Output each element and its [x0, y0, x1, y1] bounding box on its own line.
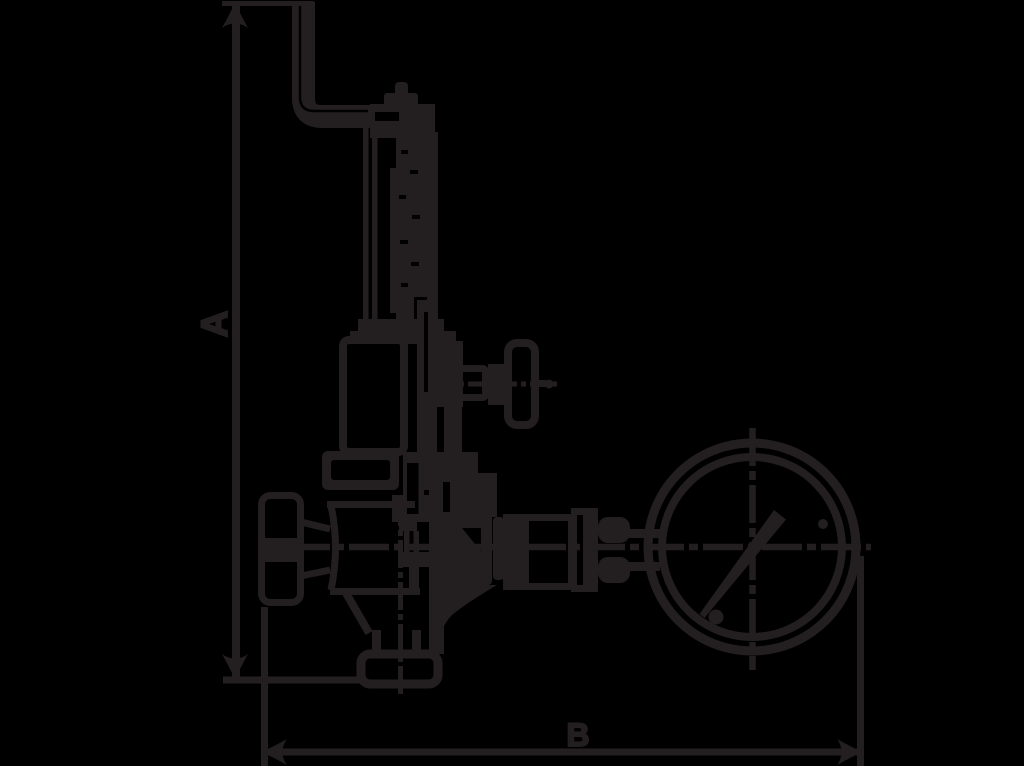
svg-text:A: A: [194, 311, 235, 338]
svg-text:B: B: [566, 717, 589, 753]
